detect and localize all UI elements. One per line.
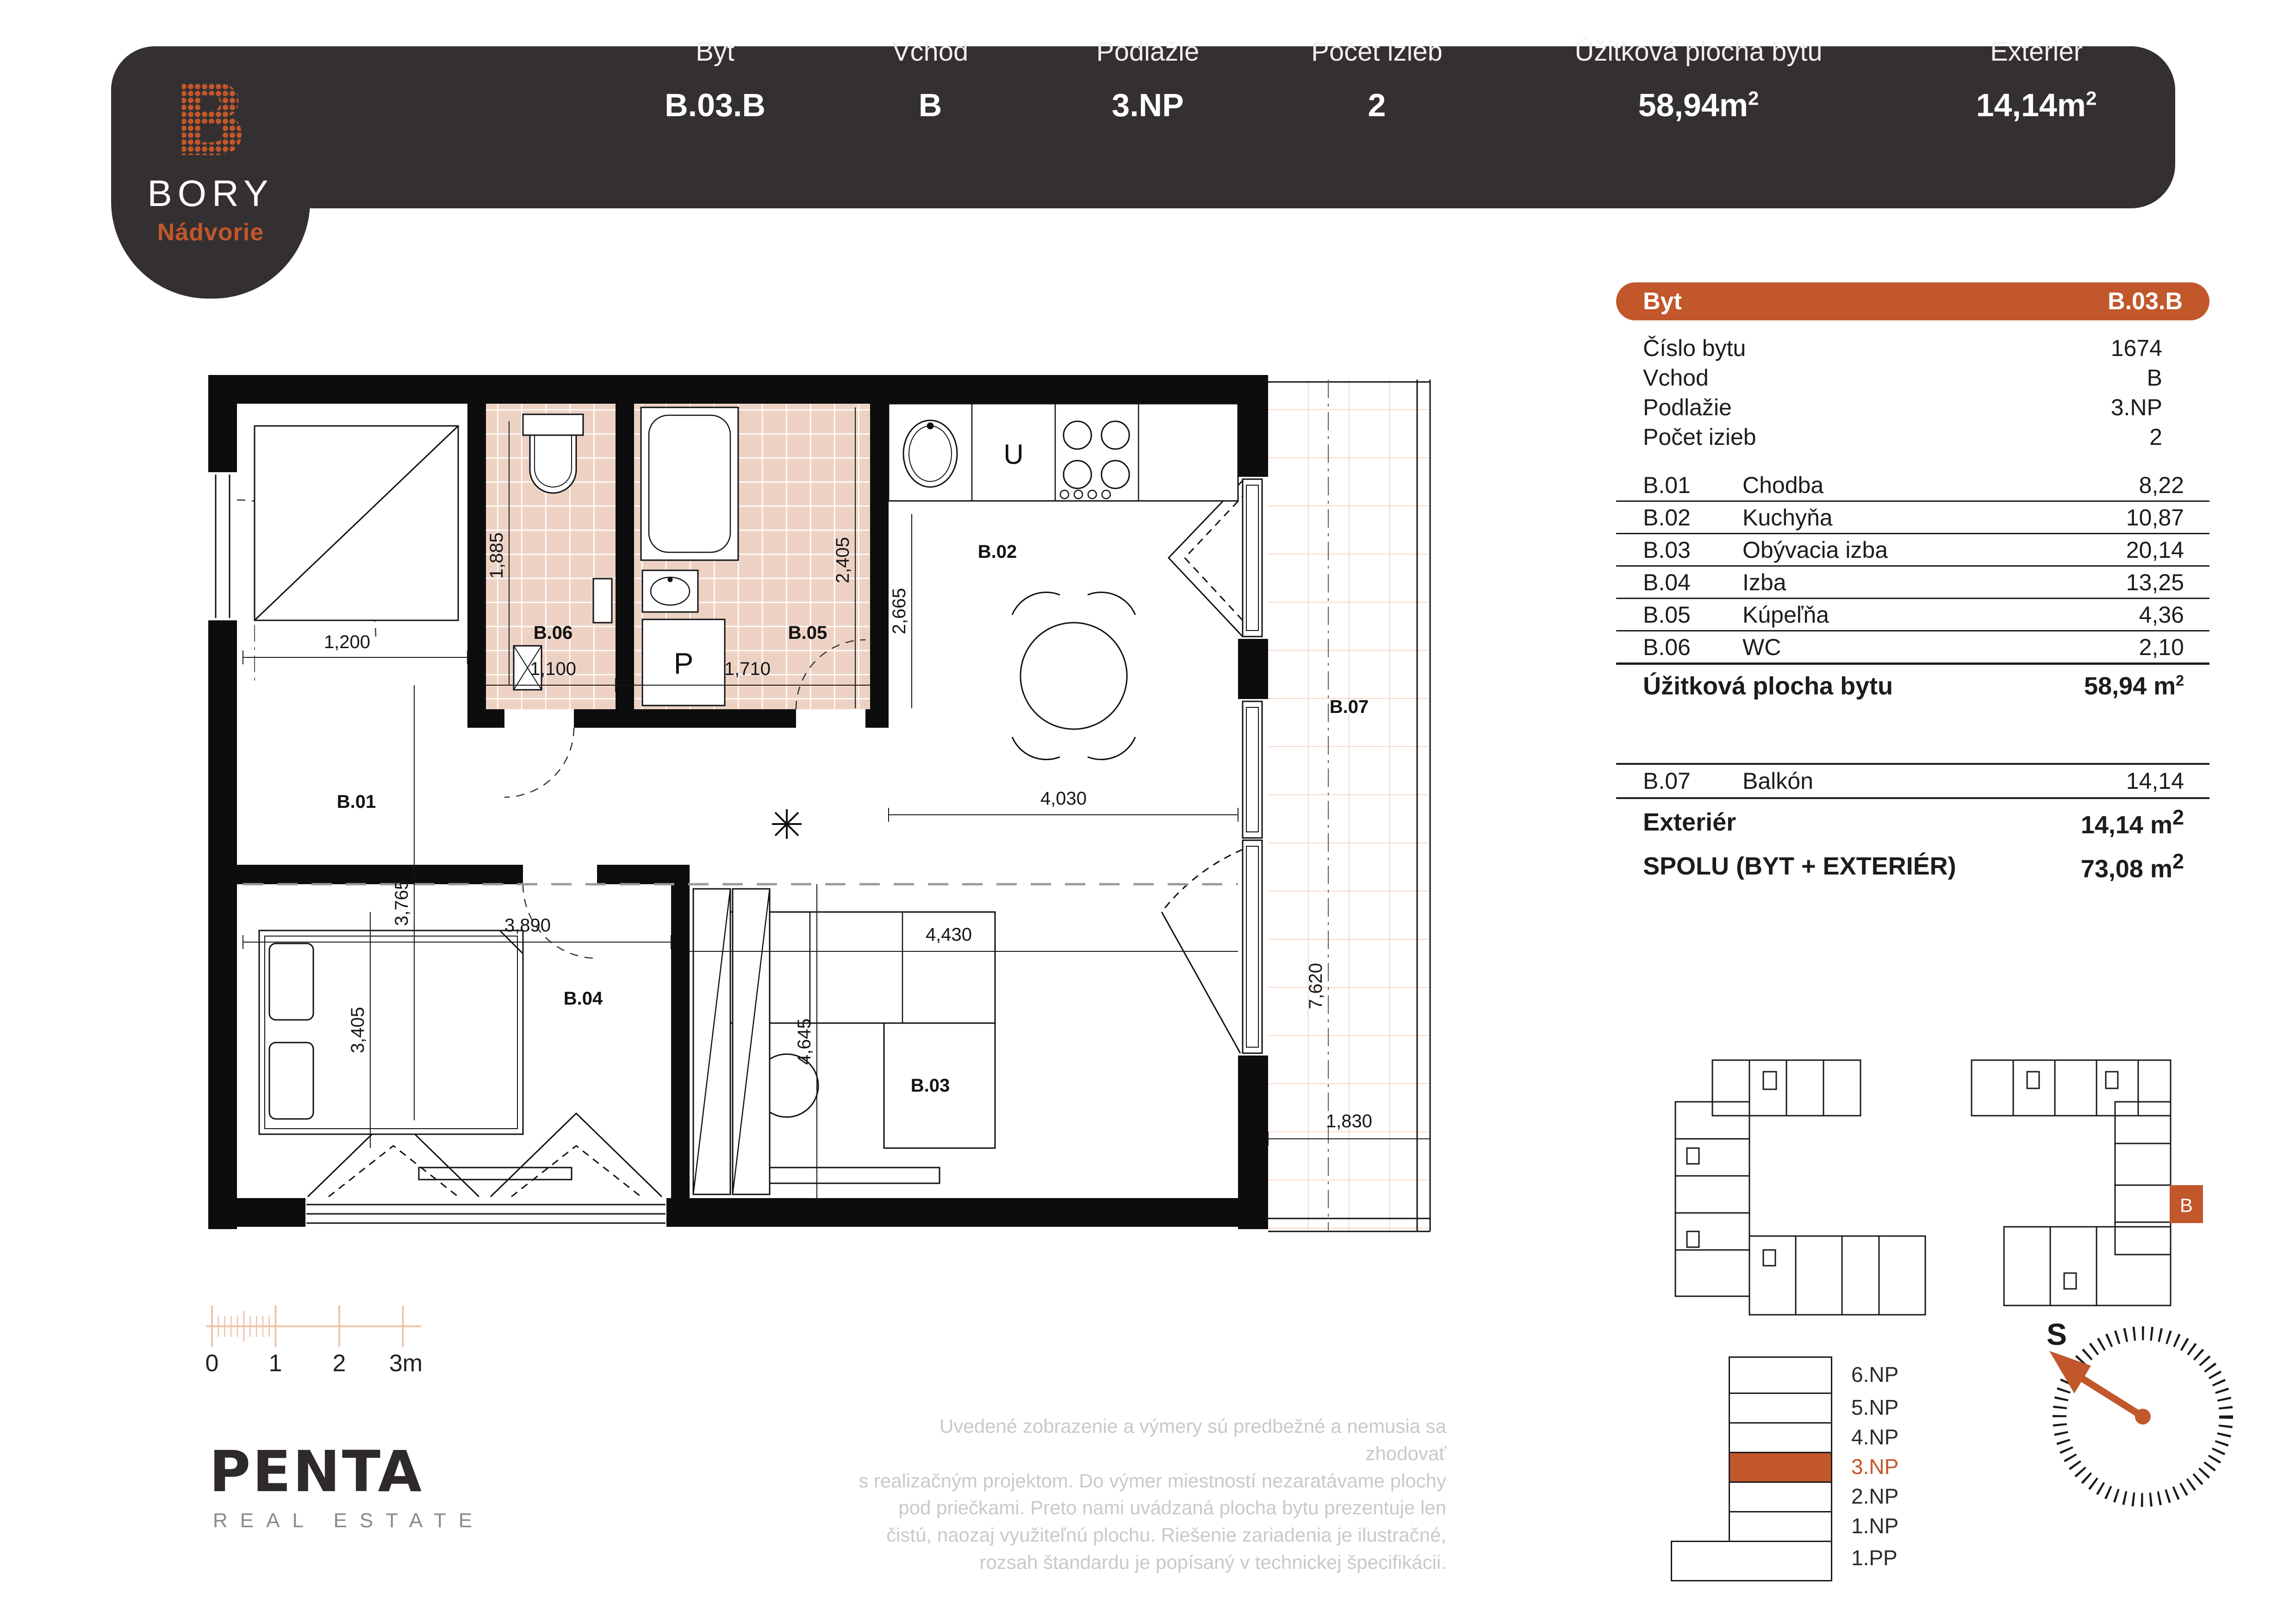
wc-basin	[593, 579, 612, 623]
meta-row: Číslo bytu1674	[1616, 333, 2209, 363]
room-label-b01: B.01	[337, 792, 376, 812]
dim-1830: 1,830	[1326, 1111, 1372, 1131]
room-rows: B.01Chodba8,22 B.02Kuchyňa10,87 B.03Obýv…	[1616, 469, 2209, 665]
north-label: S	[2047, 1317, 2067, 1351]
floor-indicator: 6.NP 5.NP 4.NP 3.NP 2.NP 1.NP 1.PP	[1668, 1356, 1955, 1597]
site-map: B	[1648, 1032, 2203, 1329]
room-label-b07: B.07	[1330, 697, 1369, 717]
room-label-b04: B.04	[564, 988, 603, 1009]
dim-4645: 4,645	[794, 1018, 815, 1065]
unit-info-table: Byt B.03.B Číslo bytu1674 VchodB Podlaži…	[1616, 282, 2209, 887]
dim-3890: 3,890	[504, 915, 551, 936]
dim-4030: 4,030	[1040, 788, 1087, 809]
meta-rows: Číslo bytu1674 VchodB Podlažie3.NP Počet…	[1616, 333, 2209, 452]
meta-row: Podlažie3.NP	[1616, 393, 2209, 422]
dim-1710: 1,710	[724, 659, 771, 679]
subtotal-row: Úžitková plocha bytu 58,94 m2	[1616, 665, 2209, 707]
floor-row	[1729, 1481, 1832, 1511]
dining-table	[1012, 592, 1135, 759]
balcony-area	[1268, 380, 1430, 1231]
table-row: B.05Kúpeľňa4,36	[1616, 599, 2209, 631]
header-field-plocha: Úžitková plocha bytu 58,94m2	[1574, 0, 1822, 162]
highlighted-unit: B	[2170, 1185, 2203, 1223]
compass-arrowhead	[2049, 1351, 2091, 1393]
table-row: B.04Izba13,25	[1616, 567, 2209, 599]
entry-wardrobe	[255, 426, 458, 620]
table-row: B.06WC2,10	[1616, 631, 2209, 665]
floor-row	[1729, 1393, 1832, 1422]
washer-label: P	[674, 647, 694, 680]
brand-name: BORY	[111, 172, 310, 215]
bathtub	[641, 407, 738, 560]
floor-row	[1729, 1356, 1832, 1393]
washbasin	[642, 570, 698, 612]
penta-logo: PENTA REAL ESTATE	[209, 1439, 485, 1532]
svg-text:3m: 3m	[389, 1350, 423, 1377]
floorplan-sheet: B BORY Nádvorie Byt B.03.B Vchod B Podla…	[0, 0, 2296, 1624]
dim-2405: 2,405	[833, 537, 853, 583]
scale-bar: 0 1 2 3m	[204, 1287, 444, 1380]
dim-2665: 2,665	[889, 588, 909, 634]
unit-code: B.03.B	[2108, 287, 2183, 315]
header-field-byt: Byt B.03.B	[665, 0, 765, 162]
fridge-label: U	[1003, 439, 1023, 470]
room-label-b05: B.05	[788, 623, 828, 643]
floor-row	[1729, 1511, 1832, 1541]
table-row: B.01Chodba8,22	[1616, 469, 2209, 502]
header-field-podlazie: Podlažie 3.NP	[1096, 0, 1199, 162]
svg-text:2: 2	[333, 1350, 346, 1377]
room-label-b06: B.06	[534, 623, 573, 643]
compass: S	[2032, 1305, 2235, 1509]
header-field-vchod: Vchod B	[892, 0, 968, 162]
svg-text:B: B	[2180, 1194, 2193, 1216]
table-row: B.07 Balkón 14,14	[1616, 765, 2209, 799]
compass-needle	[2078, 1376, 2143, 1417]
svg-text:0: 0	[205, 1350, 219, 1377]
table-row: B.02Kuchyňa10,87	[1616, 502, 2209, 534]
floor-plan: P U	[208, 361, 1439, 1268]
penta-subtitle: REAL ESTATE	[213, 1509, 485, 1532]
floor-row-basement	[1671, 1541, 1832, 1581]
dim-4430: 4,430	[926, 924, 972, 945]
meta-row: VchodB	[1616, 363, 2209, 393]
floor-row-active	[1729, 1452, 1832, 1481]
svg-text:1: 1	[269, 1350, 282, 1377]
washing-machine: P	[642, 619, 725, 706]
tv-bench	[754, 1168, 940, 1183]
kitchen-counter	[889, 404, 1238, 501]
room-label-b03: B.03	[911, 1075, 950, 1096]
dim-3765: 3,765	[392, 880, 412, 926]
header-field-izby: Počet izieb 2	[1311, 0, 1443, 162]
penta-wordmark: PENTA	[209, 1439, 485, 1505]
disclaimer-text: Uvedené zobrazenie a výmery sú predbežné…	[856, 1413, 1446, 1576]
exterior-row: Exteriér 14,14 m2	[1616, 799, 2209, 845]
table-row: B.03Obývacia izba20,14	[1616, 534, 2209, 567]
total-row: SPOLU (BYT + EXTERIÉR) 73,08 m2	[1616, 845, 2209, 887]
room-label-b02: B.02	[978, 542, 1017, 562]
dim-7620: 7,620	[1306, 963, 1326, 1009]
bory-logo: B BORY Nádvorie	[111, 46, 310, 299]
meta-row: Počet izieb2	[1616, 422, 2209, 452]
asterisk-symbol	[772, 809, 802, 839]
dim-1885: 1,885	[486, 532, 507, 579]
floor-row	[1729, 1422, 1832, 1452]
dim-3405: 3,405	[348, 1007, 368, 1053]
header-field-exterier: Exteriér 14,14m2	[1976, 0, 2097, 162]
table-header: Byt B.03.B	[1616, 282, 2209, 320]
balcony-block: B.07 Balkón 14,14 Exteriér 14,14 m2 SPOL…	[1616, 763, 2209, 887]
bed	[259, 931, 523, 1134]
brand-subtitle: Nádvorie	[111, 219, 310, 246]
dim-1100: 1,100	[530, 659, 576, 679]
dim-1200: 1,200	[324, 632, 370, 652]
bory-logo-icon: B	[111, 62, 310, 179]
